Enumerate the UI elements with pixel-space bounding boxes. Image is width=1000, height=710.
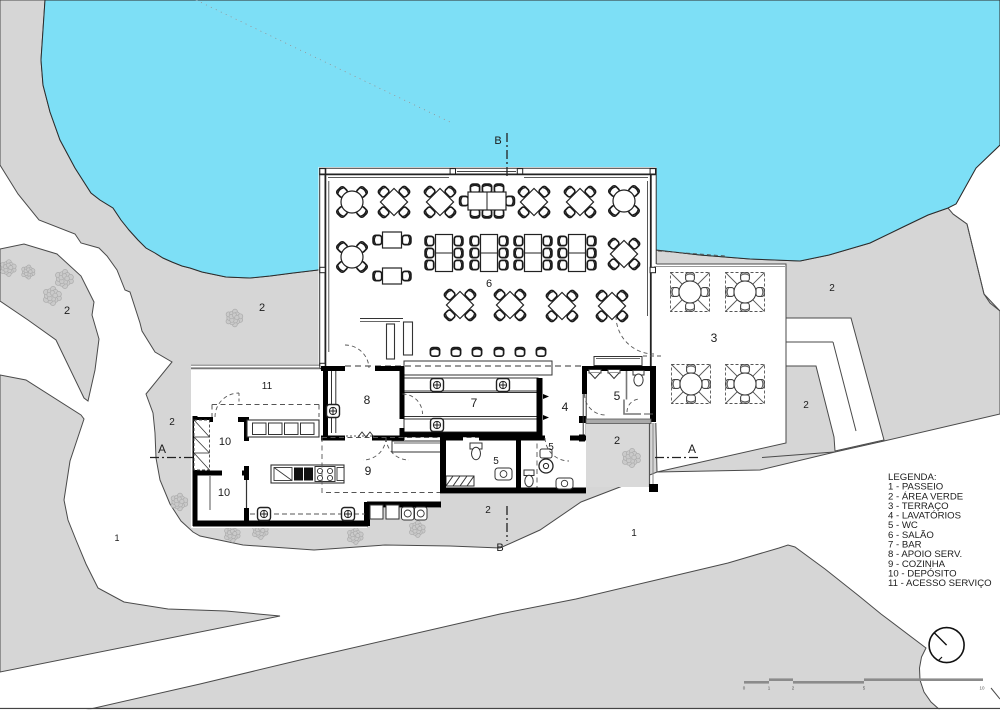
- svg-text:2: 2: [614, 435, 620, 447]
- svg-text:9: 9: [365, 464, 372, 478]
- svg-text:B: B: [496, 542, 503, 554]
- svg-text:2: 2: [485, 505, 491, 516]
- svg-text:1: 1: [114, 533, 119, 543]
- svg-text:5: 5: [548, 442, 554, 453]
- svg-text:2: 2: [803, 400, 809, 411]
- svg-text:10: 10: [219, 436, 231, 448]
- svg-text:5: 5: [493, 456, 499, 467]
- svg-text:5: 5: [614, 389, 621, 403]
- svg-text:11: 11: [262, 381, 273, 392]
- svg-text:4: 4: [562, 400, 569, 414]
- svg-text:A: A: [158, 442, 166, 456]
- svg-text:2: 2: [829, 283, 835, 294]
- svg-text:11 - ACESSO SERVIÇO: 11 - ACESSO SERVIÇO: [888, 578, 992, 589]
- svg-text:7: 7: [471, 396, 478, 410]
- svg-text:10: 10: [979, 686, 985, 691]
- svg-text:B: B: [494, 135, 501, 147]
- svg-text:10: 10: [218, 487, 230, 499]
- svg-text:2: 2: [64, 305, 70, 317]
- svg-text:A: A: [688, 442, 696, 456]
- svg-text:3: 3: [711, 331, 718, 345]
- svg-text:2: 2: [169, 417, 175, 428]
- svg-text:8: 8: [364, 393, 371, 407]
- svg-text:6: 6: [486, 278, 492, 290]
- svg-text:2: 2: [259, 302, 265, 314]
- svg-text:1: 1: [631, 528, 637, 539]
